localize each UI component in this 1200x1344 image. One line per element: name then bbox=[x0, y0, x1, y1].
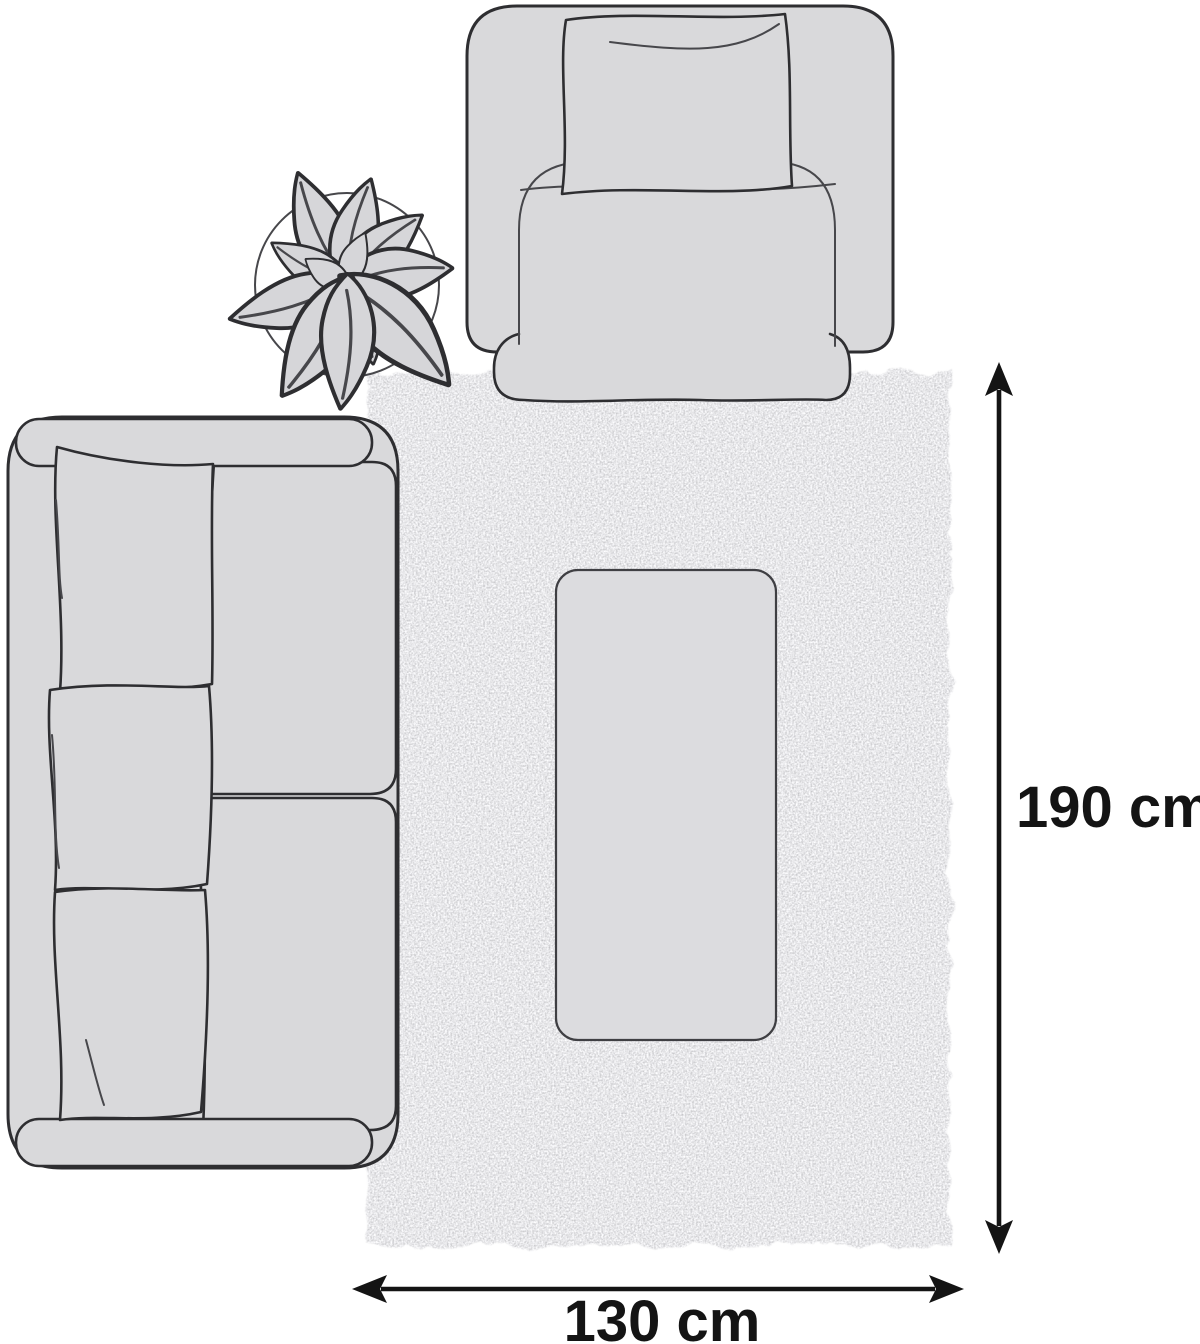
scene-canvas: 190 cm 130 cm bbox=[0, 0, 1200, 1344]
sofa-armrest-bottom bbox=[16, 1119, 372, 1166]
sofa-seat-cushion-top bbox=[197, 462, 396, 794]
height-label: 190 cm bbox=[1016, 775, 1200, 840]
rug-dimension-diagram: 190 cm 130 cm bbox=[0, 0, 1200, 1344]
armchair-seat-cushion bbox=[494, 334, 850, 401]
armchair-pillow bbox=[562, 14, 792, 194]
width-label: 130 cm bbox=[564, 1289, 761, 1344]
sofa bbox=[8, 417, 398, 1168]
sofa-seat-cushion-bottom bbox=[197, 798, 396, 1130]
potted-plant bbox=[223, 164, 474, 412]
sofa-back-pillow-2 bbox=[49, 685, 212, 890]
sofa-back-pillow-1 bbox=[55, 447, 213, 692]
sofa-back-pillow-3 bbox=[54, 888, 208, 1120]
plant-leaves bbox=[223, 164, 474, 412]
height-dimension: 190 cm bbox=[985, 362, 1200, 1254]
width-dimension: 130 cm bbox=[352, 1275, 964, 1344]
coffee-table bbox=[556, 570, 776, 1040]
armchair bbox=[467, 6, 893, 401]
